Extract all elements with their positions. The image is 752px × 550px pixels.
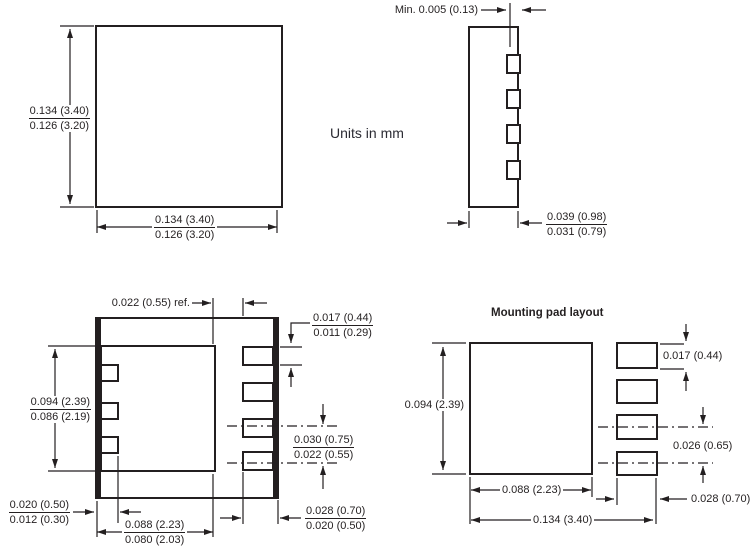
dim-bottom-view-side-lead-length: 0.020 (0.50) 0.012 (0.30) [9, 499, 70, 526]
dim-mounting-lead-height: 0.017 (0.44) [663, 350, 722, 362]
dim-mounting-lead-width: 0.028 (0.70) [691, 493, 750, 505]
side-view-figure [447, 3, 546, 228]
dim-side-view-width: 0.039 (0.98) 0.031 (0.79) [546, 211, 607, 238]
dim-mounting-overall-width: 0.134 (3.40) [531, 514, 594, 526]
mounting-pad-leads [617, 343, 657, 475]
dim-top-view-width: 0.134 (3.40) 0.126 (3.20) [152, 214, 217, 241]
dim-top-view-height: 0.134 (3.40) 0.126 (3.20) [27, 105, 92, 132]
drawing-linework [0, 0, 752, 550]
bottom-view-left-leads [101, 365, 118, 453]
dim-mounting-pad-width: 0.088 (2.23) [500, 484, 563, 496]
dim-side-view-lead-inset: Min. 0.005 (0.13) [395, 4, 478, 16]
dim-bottom-view-lead-length: 0.028 (0.70) 0.020 (0.50) [305, 505, 366, 532]
units-note: Units in mm [330, 127, 404, 139]
top-view-figure [60, 26, 282, 233]
package-outline-drawing: Units in mm 0.134 (3.40) 0.126 (3.20) 0.… [0, 0, 752, 550]
dim-mounting-pad-height: 0.094 (2.39) [403, 399, 466, 411]
dim-bottom-view-pad-edge-ref: 0.022 (0.55) ref. [112, 297, 190, 309]
dim-bottom-view-pad-width: 0.088 (2.23) 0.080 (2.03) [122, 519, 187, 546]
dim-bottom-view-pad-height: 0.094 (2.39) 0.086 (2.19) [28, 396, 93, 423]
mounting-pad-center [470, 343, 592, 474]
dim-bottom-view-lead-pitch: 0.030 (0.75) 0.022 (0.55) [291, 434, 356, 461]
top-view-body [96, 26, 282, 207]
mounting-pad-title: Mounting pad layout [491, 307, 603, 319]
dim-mounting-lead-pitch: 0.026 (0.65) [673, 440, 732, 452]
dim-bottom-view-lead-width: 0.017 (0.44) 0.011 (0.29) [312, 312, 373, 339]
